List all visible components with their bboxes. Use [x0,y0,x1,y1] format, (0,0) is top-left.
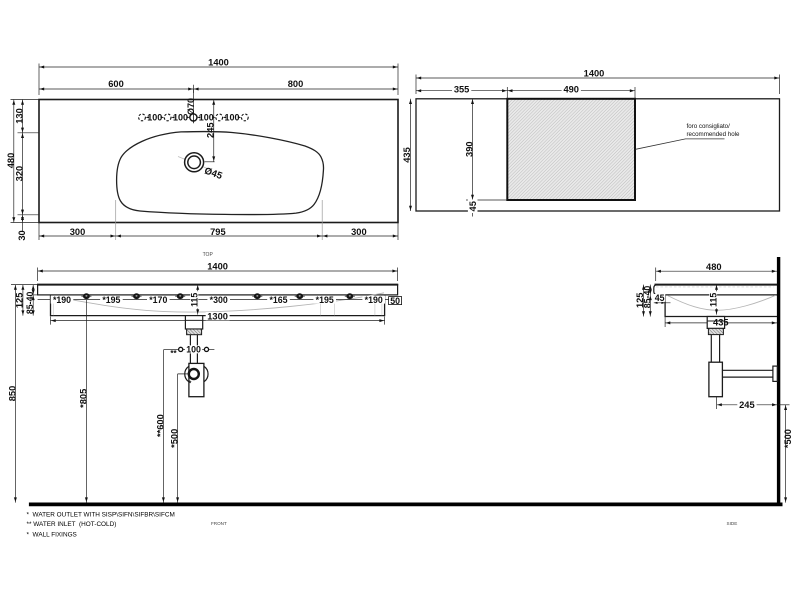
svg-text:45: 45 [468,201,478,211]
svg-text:FRONT: FRONT [211,521,227,526]
svg-text:435: 435 [402,147,412,163]
svg-text:85-40: 85-40 [643,286,653,309]
svg-text:125: 125 [15,293,25,309]
svg-text:*300: *300 [210,295,228,305]
svg-text:100: 100 [224,113,239,123]
svg-text:300: 300 [351,227,367,237]
svg-text:Ø70: Ø70 [186,98,196,115]
svg-text:1400: 1400 [584,69,605,79]
svg-text:1300: 1300 [207,312,228,322]
svg-text:TOP: TOP [203,252,214,258]
svg-text:* WATER OUTLET WITH SISP\SIFN: * WATER OUTLET WITH SISP\SIFN\SIFBR\SIFC… [27,511,175,518]
svg-text:130: 130 [15,108,25,124]
svg-text:30: 30 [17,230,27,240]
svg-text:*: * [189,381,192,388]
svg-text:** WATER INLET (HOT-COLD): ** WATER INLET (HOT-COLD) [27,521,117,528]
svg-text:480: 480 [706,262,722,272]
svg-text:600: 600 [108,79,124,89]
svg-text:1400: 1400 [208,58,229,68]
svg-text:355: 355 [454,85,470,95]
svg-text:45: 45 [655,293,665,303]
svg-text:recommended hole: recommended hole [687,131,741,138]
svg-text:**600: **600 [156,414,166,437]
svg-text:foro consigliato/: foro consigliato/ [687,123,731,130]
svg-text:390: 390 [465,141,475,157]
svg-text:490: 490 [563,84,579,94]
svg-text:*170: *170 [149,295,167,305]
svg-text:*165: *165 [269,295,287,305]
svg-text:245: 245 [739,400,755,410]
svg-text:100: 100 [199,113,214,123]
svg-text:115: 115 [190,293,200,307]
svg-text:245: 245 [205,122,215,138]
svg-text:* WALL FIXINGS: * WALL FIXINGS [27,531,77,538]
svg-text:850: 850 [8,386,18,402]
svg-text:435: 435 [713,318,729,328]
svg-text:SIDE: SIDE [727,521,738,526]
svg-text:100: 100 [186,345,201,355]
svg-text:1400: 1400 [207,262,228,272]
svg-text:115: 115 [708,293,718,307]
svg-text:**: ** [170,349,177,358]
svg-text:795: 795 [210,227,226,237]
svg-text:800: 800 [288,79,304,89]
svg-text:320: 320 [15,166,25,182]
svg-text:*195: *195 [102,295,120,305]
svg-text:*195: *195 [316,295,334,305]
svg-text:*805: *805 [79,389,89,408]
svg-text:*190: *190 [53,295,71,305]
svg-text:*500: *500 [783,429,793,448]
svg-text:50: 50 [390,296,400,306]
svg-text:*190: *190 [365,295,383,305]
svg-text:100: 100 [147,113,162,123]
svg-text:85-40: 85-40 [25,292,35,315]
svg-text:300: 300 [70,227,86,237]
svg-text:*500: *500 [170,429,180,448]
